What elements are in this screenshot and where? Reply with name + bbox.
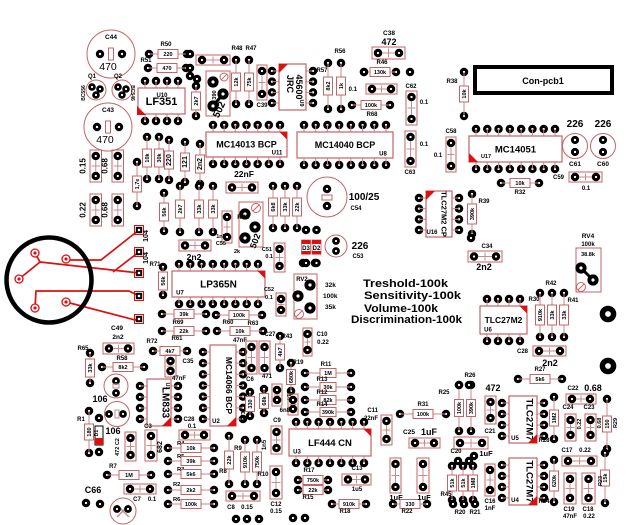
svg-text:2n2: 2n2 [187, 252, 202, 262]
svg-text:BC546: BC546 [129, 85, 135, 101]
svg-text:1u5: 1u5 [352, 487, 363, 493]
svg-text:6k8: 6k8 [271, 202, 277, 211]
svg-text:226: 226 [567, 119, 584, 130]
svg-text:R71: R71 [149, 262, 161, 268]
svg-text:910k: 910k [243, 455, 249, 468]
svg-text:2k: 2k [234, 249, 241, 255]
svg-text:C60: C60 [597, 161, 609, 168]
svg-text:C34: C34 [481, 244, 493, 250]
svg-text:390k: 390k [470, 207, 476, 220]
svg-text:0.22: 0.22 [317, 340, 329, 346]
svg-text:U8: U8 [379, 152, 387, 158]
svg-text:RV1: RV1 [237, 215, 249, 221]
svg-text:33k: 33k [283, 201, 289, 211]
svg-text:620k: 620k [552, 474, 558, 487]
svg-text:8k2: 8k2 [118, 365, 127, 371]
svg-text:56k: 56k [161, 275, 167, 285]
svg-text:R6: R6 [173, 497, 181, 503]
svg-text:R2: R2 [173, 482, 180, 488]
svg-text:51k: 51k [450, 477, 456, 487]
svg-text:33k: 33k [550, 309, 556, 319]
svg-text:220: 220 [166, 154, 173, 166]
svg-text:R58: R58 [116, 356, 128, 362]
svg-text:D1: D1 [94, 430, 100, 437]
svg-text:472 C2: 472 C2 [115, 438, 121, 456]
svg-text:C18: C18 [582, 507, 594, 513]
svg-text:0.1: 0.1 [188, 424, 197, 430]
svg-text:0.15: 0.15 [241, 505, 253, 511]
svg-text:U9: U9 [298, 99, 304, 106]
svg-text:TLC27M7: TLC27M7 [523, 460, 534, 502]
svg-text:U1: U1 [164, 382, 170, 389]
svg-text:C25: C25 [403, 429, 415, 436]
svg-text:0.1: 0.1 [434, 153, 443, 159]
svg-text:R63: R63 [247, 321, 259, 327]
svg-text:C66: C66 [85, 485, 102, 495]
svg-text:C51: C51 [262, 247, 272, 253]
svg-text:130k: 130k [374, 70, 387, 76]
svg-text:LF444 CN: LF444 CN [308, 438, 352, 449]
svg-text:0.68: 0.68 [597, 418, 603, 429]
svg-text:C13: C13 [351, 466, 363, 472]
svg-text:4k7: 4k7 [278, 347, 284, 356]
svg-text:22k: 22k [179, 329, 189, 335]
svg-text:LP365N: LP365N [200, 280, 237, 291]
svg-text:470: 470 [99, 61, 117, 73]
svg-text:22k: 22k [295, 201, 301, 211]
svg-text:R69: R69 [172, 320, 184, 326]
svg-text:R72: R72 [146, 339, 158, 345]
svg-text:R42: R42 [545, 281, 557, 287]
svg-text:U3: U3 [293, 450, 301, 456]
svg-text:C59: C59 [553, 175, 565, 181]
svg-text:33k: 33k [211, 203, 217, 213]
svg-text:R9: R9 [234, 446, 242, 452]
svg-text:R1: R1 [77, 417, 85, 423]
svg-text:0.22: 0.22 [79, 202, 88, 218]
svg-text:12k: 12k [234, 76, 240, 86]
svg-text:330: 330 [248, 399, 254, 408]
svg-text:C11: C11 [367, 408, 378, 414]
svg-text:R60: R60 [222, 320, 234, 326]
svg-text:75k: 75k [247, 76, 253, 86]
svg-text:Q1: Q1 [88, 74, 97, 80]
svg-text:C38: C38 [383, 30, 395, 37]
svg-text:U7: U7 [176, 291, 184, 297]
svg-text:C22: C22 [567, 386, 579, 392]
svg-text:R31: R31 [417, 402, 429, 408]
svg-text:R30: R30 [528, 297, 540, 303]
svg-text:5k6: 5k6 [186, 472, 195, 478]
svg-text:0.15: 0.15 [270, 509, 282, 515]
svg-text:51k: 51k [461, 477, 467, 487]
svg-text:0.68: 0.68 [101, 202, 110, 218]
svg-text:0.1: 0.1 [582, 186, 591, 192]
svg-text:56k: 56k [162, 206, 168, 216]
svg-text:R25: R25 [438, 390, 450, 396]
svg-text:0.22: 0.22 [583, 514, 595, 520]
svg-text:10k: 10k [235, 329, 245, 335]
svg-text:C49: C49 [111, 325, 123, 332]
svg-text:38.8k: 38.8k [581, 252, 596, 258]
svg-text:R39: R39 [478, 199, 490, 205]
svg-text:D3: D3 [302, 246, 310, 252]
svg-text:R43: R43 [281, 334, 293, 340]
svg-text:2n2: 2n2 [112, 334, 124, 341]
svg-text:1uF: 1uF [389, 493, 403, 502]
svg-text:22nF: 22nF [364, 416, 378, 422]
svg-text:39k: 39k [186, 459, 196, 465]
svg-text:0.1: 0.1 [349, 87, 358, 93]
svg-text:R32: R32 [514, 190, 526, 196]
svg-text:1,7e: 1,7e [135, 179, 141, 190]
svg-text:47nF: 47nF [172, 376, 186, 382]
svg-text:R61: R61 [171, 336, 183, 342]
svg-text:1n5: 1n5 [262, 439, 268, 450]
svg-text:121: 121 [182, 156, 189, 168]
svg-text:Con-pcb1: Con-pcb1 [522, 76, 564, 86]
svg-text:R38: R38 [446, 79, 458, 85]
svg-text:390: 390 [212, 90, 218, 99]
svg-text:33k: 33k [562, 309, 568, 319]
svg-text:U4: U4 [511, 498, 519, 504]
svg-text:0.1: 0.1 [265, 295, 273, 301]
svg-text:C63: C63 [404, 170, 416, 176]
svg-text:U2: U2 [212, 419, 220, 425]
svg-text:MC14040 BCP: MC14040 BCP [315, 140, 376, 150]
svg-text:C20: C20 [450, 449, 462, 455]
svg-text:C54: C54 [350, 206, 362, 212]
svg-text:R51: R51 [140, 58, 152, 64]
svg-text:390k: 390k [469, 401, 475, 414]
svg-text:C19: C19 [563, 507, 575, 513]
svg-text:C8: C8 [227, 505, 235, 511]
svg-text:C12: C12 [270, 502, 282, 508]
svg-text:R21: R21 [469, 510, 481, 516]
svg-text:22k: 22k [227, 454, 233, 464]
svg-text:150: 150 [605, 419, 611, 428]
svg-text:Treshold-100k: Treshold-100k [363, 278, 449, 290]
svg-text:47nF: 47nF [563, 514, 577, 520]
svg-text:C10: C10 [316, 332, 328, 338]
svg-text:R11: R11 [321, 362, 332, 368]
svg-text:U17: U17 [481, 154, 491, 160]
svg-text:2n2: 2n2 [476, 262, 492, 272]
svg-text:MC14066 BCP: MC14066 BCP [224, 357, 234, 414]
svg-text:R18: R18 [339, 509, 351, 515]
svg-text:C62: C62 [405, 84, 417, 90]
svg-text:C21: C21 [484, 429, 496, 435]
svg-text:0.22: 0.22 [577, 419, 583, 430]
svg-text:2k7: 2k7 [194, 96, 200, 105]
svg-text:Q2: Q2 [114, 74, 123, 80]
svg-text:0.1: 0.1 [420, 100, 429, 106]
svg-text:100k: 100k [185, 502, 198, 508]
svg-text:30k: 30k [157, 152, 163, 162]
svg-text:RV4: RV4 [582, 233, 595, 240]
svg-text:R73: R73 [241, 411, 247, 420]
svg-text:100k: 100k [417, 412, 430, 418]
svg-text:LM833: LM833 [160, 387, 171, 419]
svg-text:470: 470 [96, 134, 114, 146]
svg-text:U11: U11 [272, 151, 283, 157]
svg-text:R7: R7 [109, 464, 117, 470]
svg-text:U10: U10 [156, 93, 168, 99]
svg-text:R15: R15 [302, 495, 314, 501]
svg-text:R47: R47 [245, 46, 257, 52]
svg-text:680k: 680k [289, 370, 295, 383]
svg-text:R45: R45 [440, 492, 452, 498]
svg-text:68k: 68k [262, 395, 268, 405]
svg-text:C9: C9 [273, 418, 281, 424]
svg-text:10k: 10k [462, 88, 468, 98]
svg-text:R10: R10 [257, 472, 269, 478]
svg-text:TLC27M2 CP: TLC27M2 CP [440, 191, 449, 237]
svg-text:C44: C44 [105, 34, 117, 41]
svg-text:R65: R65 [77, 346, 89, 352]
svg-text:C55: C55 [216, 241, 226, 247]
svg-text:10k: 10k [186, 446, 196, 452]
svg-text:100/25: 100/25 [349, 192, 380, 203]
svg-text:C61: C61 [569, 161, 581, 168]
svg-text:C23: C23 [583, 405, 595, 411]
svg-text:2k2: 2k2 [186, 488, 195, 494]
svg-text:MC14051: MC14051 [495, 144, 537, 155]
svg-text:0.68: 0.68 [584, 383, 602, 393]
svg-text:100k: 100k [581, 242, 595, 248]
svg-text:750k: 750k [307, 478, 320, 484]
svg-text:C27: C27 [264, 332, 276, 338]
svg-text:1M: 1M [125, 473, 133, 479]
svg-text:C7: C7 [133, 497, 141, 503]
svg-text:U5: U5 [511, 436, 519, 442]
svg-text:R41: R41 [567, 298, 579, 304]
svg-text:10k: 10k [515, 181, 525, 187]
svg-text:910k: 910k [538, 308, 544, 321]
svg-text:226: 226 [595, 119, 612, 130]
svg-text:1k: 1k [339, 82, 345, 89]
svg-text:22k: 22k [308, 488, 318, 494]
svg-text:R24: R24 [538, 499, 550, 505]
svg-text:U6: U6 [484, 328, 492, 334]
svg-text:TLC27M2: TLC27M2 [485, 315, 523, 325]
svg-text:104: 104 [143, 230, 150, 242]
svg-text:106: 106 [105, 426, 120, 436]
svg-text:910k: 910k [343, 502, 356, 508]
svg-text:2n2: 2n2 [197, 158, 204, 170]
svg-text:JRC: JRC [285, 75, 295, 94]
svg-text:C16: C16 [484, 499, 496, 505]
svg-text:330: 330 [405, 502, 414, 508]
svg-text:472: 472 [485, 383, 500, 393]
svg-text:U16: U16 [426, 230, 438, 236]
svg-text:Discrimination-100k: Discrimination-100k [351, 314, 463, 326]
svg-text:R28: R28 [538, 438, 550, 444]
svg-text:R22: R22 [401, 509, 413, 515]
svg-text:471: 471 [262, 374, 273, 380]
svg-text:C53: C53 [352, 254, 364, 260]
svg-text:1uF: 1uF [479, 449, 493, 458]
svg-text:C28: C28 [517, 349, 529, 355]
svg-text:R20: R20 [454, 510, 466, 516]
svg-text:226: 226 [352, 241, 369, 252]
svg-text:100k: 100k [323, 293, 338, 300]
svg-text:C3: C3 [144, 424, 152, 430]
svg-text:1uF: 1uF [421, 427, 438, 437]
svg-text:2k7: 2k7 [178, 204, 184, 213]
svg-text:R8: R8 [219, 469, 227, 475]
svg-text:C6: C6 [246, 377, 254, 383]
svg-text:BC556: BC556 [81, 85, 87, 101]
svg-text:682: 682 [157, 441, 164, 453]
svg-text:0.1: 0.1 [420, 142, 429, 148]
svg-text:MC14013 BCP: MC14013 BCP [216, 140, 277, 150]
svg-text:R23: R23 [598, 476, 604, 486]
svg-text:0.15: 0.15 [79, 158, 88, 174]
svg-text:1nF: 1nF [216, 234, 226, 240]
svg-text:2n2: 2n2 [542, 358, 558, 368]
svg-text:472: 472 [381, 37, 396, 47]
svg-text:22nF: 22nF [234, 169, 254, 179]
svg-text:0.68: 0.68 [101, 158, 110, 174]
svg-text:R17: R17 [303, 468, 315, 474]
svg-text:390k: 390k [322, 410, 335, 416]
svg-text:100k: 100k [365, 103, 378, 109]
svg-text:6n8: 6n8 [280, 408, 291, 414]
svg-text:106: 106 [92, 394, 107, 404]
svg-text:100k: 100k [457, 401, 463, 414]
svg-text:1M8: 1M8 [471, 478, 477, 489]
svg-text:D2: D2 [313, 246, 321, 252]
svg-text:0.22: 0.22 [579, 448, 591, 454]
svg-text:47nF: 47nF [233, 338, 247, 344]
svg-text:R68: R68 [366, 112, 378, 118]
svg-text:C17: C17 [561, 448, 573, 454]
svg-text:C52: C52 [264, 287, 274, 293]
svg-text:8k2: 8k2 [326, 81, 332, 90]
svg-text:4k7: 4k7 [165, 349, 174, 355]
svg-text:TLC27M7: TLC27M7 [523, 398, 534, 440]
svg-text:180: 180 [87, 427, 93, 436]
svg-text:R46: R46 [376, 60, 388, 66]
svg-text:5k6: 5k6 [535, 377, 544, 383]
svg-text:R48: R48 [231, 46, 243, 52]
svg-text:1M2: 1M2 [552, 413, 558, 424]
svg-text:C39: C39 [256, 103, 268, 109]
svg-text:35k: 35k [325, 304, 336, 311]
svg-text:1nF: 1nF [485, 506, 496, 512]
svg-text:R57: R57 [316, 68, 328, 74]
svg-text:32k: 32k [325, 282, 336, 289]
svg-text:0.1: 0.1 [265, 254, 273, 260]
svg-text:R50: R50 [160, 42, 172, 48]
svg-text:220: 220 [163, 52, 172, 58]
svg-text:39k: 39k [179, 312, 189, 318]
svg-text:750k: 750k [255, 455, 261, 468]
svg-text:C28: C28 [183, 417, 195, 423]
svg-text:1uF: 1uF [417, 493, 431, 502]
svg-text:0.1: 0.1 [148, 497, 157, 503]
svg-text:10k: 10k [145, 152, 151, 162]
svg-text:Sensitivity-100k: Sensitivity-100k [364, 290, 462, 302]
svg-text:C24: C24 [562, 405, 574, 411]
svg-text:R56: R56 [334, 49, 346, 55]
svg-text:100k: 100k [233, 313, 246, 319]
svg-text:33k: 33k [88, 362, 94, 372]
svg-text:R26: R26 [464, 373, 476, 379]
svg-text:470: 470 [162, 66, 171, 72]
svg-text:C43: C43 [102, 107, 114, 114]
svg-text:C58: C58 [445, 129, 457, 135]
svg-text:C35: C35 [182, 359, 194, 365]
svg-text:R19: R19 [292, 360, 304, 366]
svg-text:R29: R29 [613, 418, 619, 428]
svg-text:33k: 33k [197, 203, 203, 213]
